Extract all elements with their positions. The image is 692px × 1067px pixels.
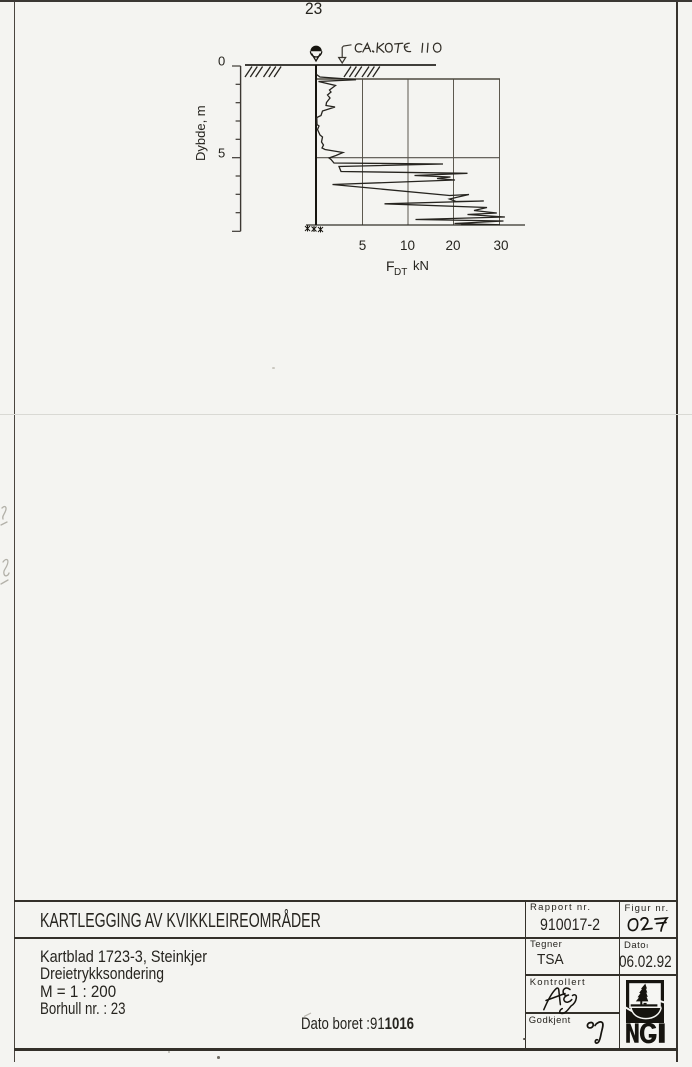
svg-text:5: 5 xyxy=(359,238,367,253)
svg-text:20: 20 xyxy=(445,238,460,253)
svg-text:Dybde, m: Dybde, m xyxy=(193,105,208,161)
svg-text:10: 10 xyxy=(400,238,415,253)
svg-text:5: 5 xyxy=(218,146,225,161)
svg-text:30: 30 xyxy=(493,238,508,253)
svg-text:DT: DT xyxy=(394,267,407,278)
svg-text:0: 0 xyxy=(218,54,225,69)
svg-text:kN: kN xyxy=(413,258,429,273)
